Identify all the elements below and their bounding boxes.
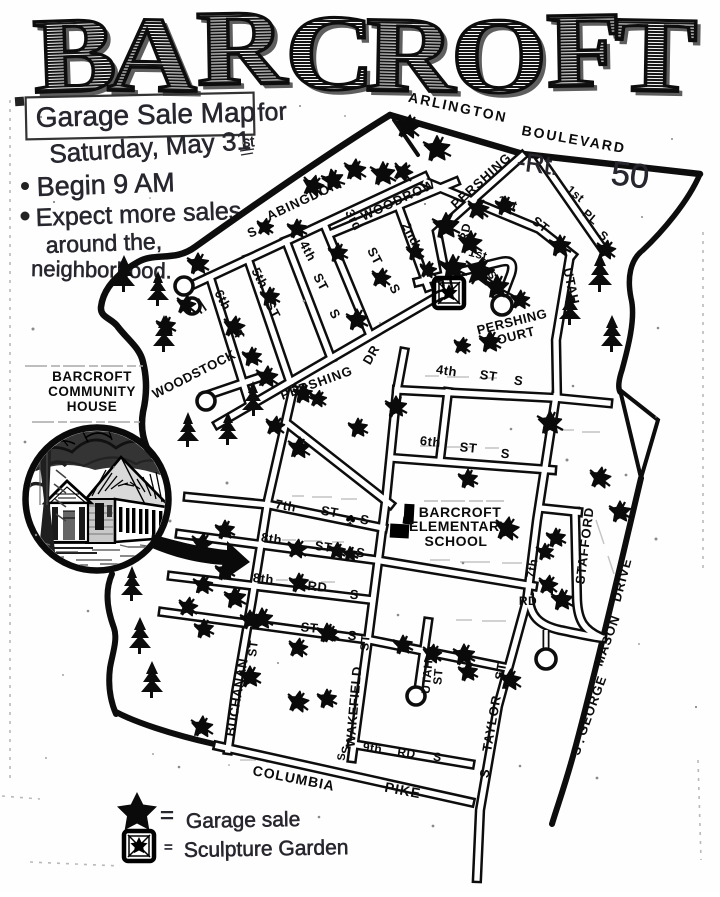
svg-text:Sculpture Garden: Sculpture Garden — [184, 836, 349, 862]
svg-text:8th: 8th — [252, 570, 274, 587]
svg-text:-Rt.: -Rt. — [515, 146, 560, 181]
svg-text:S: S — [336, 752, 349, 761]
svg-text:=: = — [160, 802, 174, 829]
svg-text:ELEMENTARY: ELEMENTARY — [409, 518, 509, 534]
svg-text:RD: RD — [396, 745, 416, 761]
svg-text:Garage sale: Garage sale — [186, 808, 301, 833]
svg-text:B: B — [31, 0, 118, 117]
svg-text:HOUSE: HOUSE — [67, 399, 118, 414]
svg-text:ST: ST — [479, 367, 499, 384]
svg-text:=: = — [164, 839, 173, 856]
svg-text:ST: ST — [459, 439, 478, 456]
svg-text:Begin 9 AM: Begin 9 AM — [36, 167, 175, 202]
svg-text:9th: 9th — [245, 609, 267, 626]
svg-text:BARCROFT: BARCROFT — [52, 369, 132, 384]
svg-text:9th: 9th — [362, 740, 383, 757]
svg-text:ST: ST — [492, 661, 510, 681]
svg-text:ST: ST — [300, 619, 319, 636]
svg-text:S: S — [347, 628, 358, 644]
svg-text:8th: 8th — [260, 530, 283, 548]
svg-text:COMMUNITY: COMMUNITY — [48, 384, 136, 399]
svg-text:S: S — [349, 587, 360, 603]
svg-text:50: 50 — [609, 154, 651, 196]
svg-text:RD: RD — [307, 578, 328, 595]
svg-text:F: F — [545, 0, 623, 111]
svg-text:SCHOOL: SCHOOL — [425, 533, 488, 549]
svg-text:ST: ST — [357, 634, 372, 652]
svg-text:ST: ST — [320, 503, 340, 521]
svg-text:ST: ST — [314, 538, 334, 555]
svg-text:RD: RD — [519, 594, 537, 608]
svg-text:O: O — [451, 0, 548, 116]
svg-text:st: st — [242, 133, 256, 151]
svg-text:T: T — [613, 0, 698, 116]
svg-text:ST: ST — [245, 639, 261, 657]
svg-text:4th: 4th — [435, 362, 458, 380]
svg-text:C: C — [285, 0, 375, 113]
svg-text:for: for — [257, 98, 288, 127]
svg-text:ST: ST — [430, 668, 445, 686]
svg-text:S: S — [500, 446, 511, 462]
svg-text:6th: 6th — [419, 433, 441, 450]
svg-text:around the,: around the, — [45, 228, 162, 258]
